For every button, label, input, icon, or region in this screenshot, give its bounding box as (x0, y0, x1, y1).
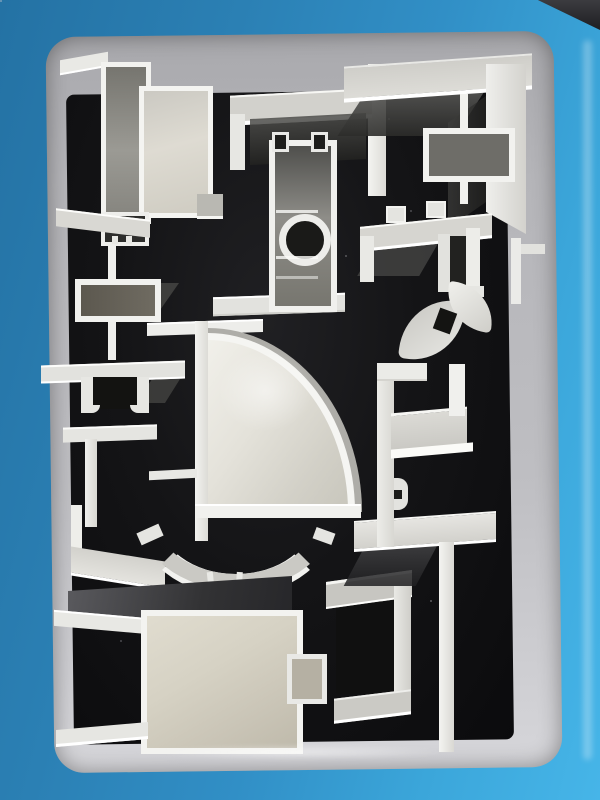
right-tab (287, 654, 327, 704)
box-core (423, 128, 515, 182)
profile-display-photo (0, 0, 600, 800)
top-slot-tab (272, 132, 289, 152)
vertical-arm (511, 238, 521, 304)
side-step (197, 194, 223, 219)
leg-hook (130, 405, 149, 413)
channel-interior (336, 598, 394, 694)
glazing-leg (112, 236, 118, 244)
right-strip (449, 364, 465, 416)
left-leg (230, 114, 245, 170)
t-slot-tab (386, 206, 406, 223)
box-core (75, 279, 161, 322)
face-highlight (218, 350, 313, 432)
inner-rib (276, 256, 318, 259)
main-box (141, 610, 303, 754)
top-tab (377, 363, 427, 381)
frame-highlight (583, 40, 592, 760)
hook-notch (394, 490, 402, 499)
glazing-leg (126, 236, 132, 244)
horizontal-tab (521, 244, 545, 254)
channel-wall (466, 228, 480, 290)
inner-rib (276, 276, 318, 279)
channel-interior (450, 236, 466, 286)
dust-specks (0, 0, 2, 2)
tray-reflection (150, 744, 450, 760)
top-slot-tab (311, 132, 328, 152)
t-slot-tab (426, 201, 446, 218)
vertical-arm (85, 439, 97, 527)
inner-rib (276, 210, 318, 213)
left-leg (360, 236, 374, 282)
stem (439, 542, 454, 752)
